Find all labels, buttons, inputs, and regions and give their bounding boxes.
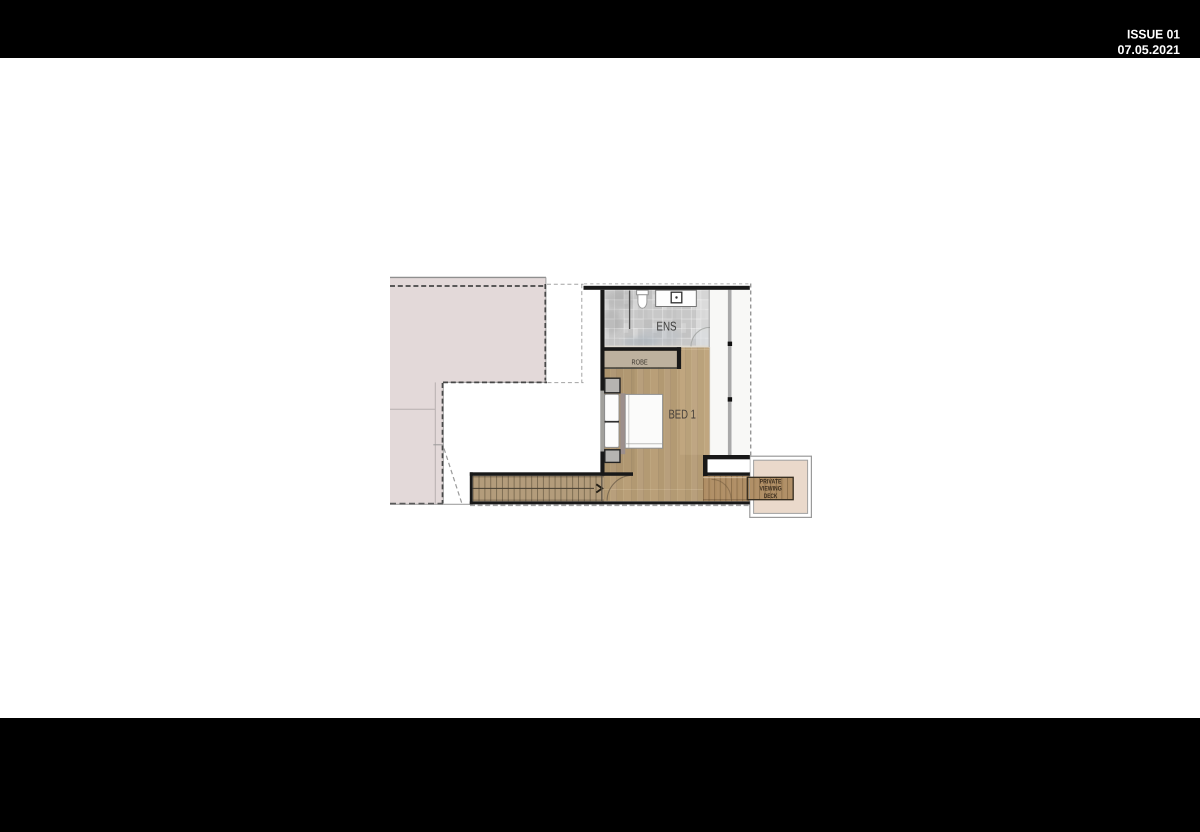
svg-text:PRIVATE: PRIVATE: [760, 478, 782, 485]
svg-text:07.05.2021: 07.05.2021: [1118, 43, 1181, 57]
svg-text:BED 1: BED 1: [668, 407, 696, 422]
svg-text:ISSUE 01: ISSUE 01: [1127, 28, 1180, 42]
svg-text:DECK: DECK: [764, 493, 778, 500]
svg-text:VIEWING: VIEWING: [760, 486, 782, 493]
svg-text:ENS: ENS: [656, 319, 676, 334]
svg-text:ROBE: ROBE: [632, 357, 648, 366]
